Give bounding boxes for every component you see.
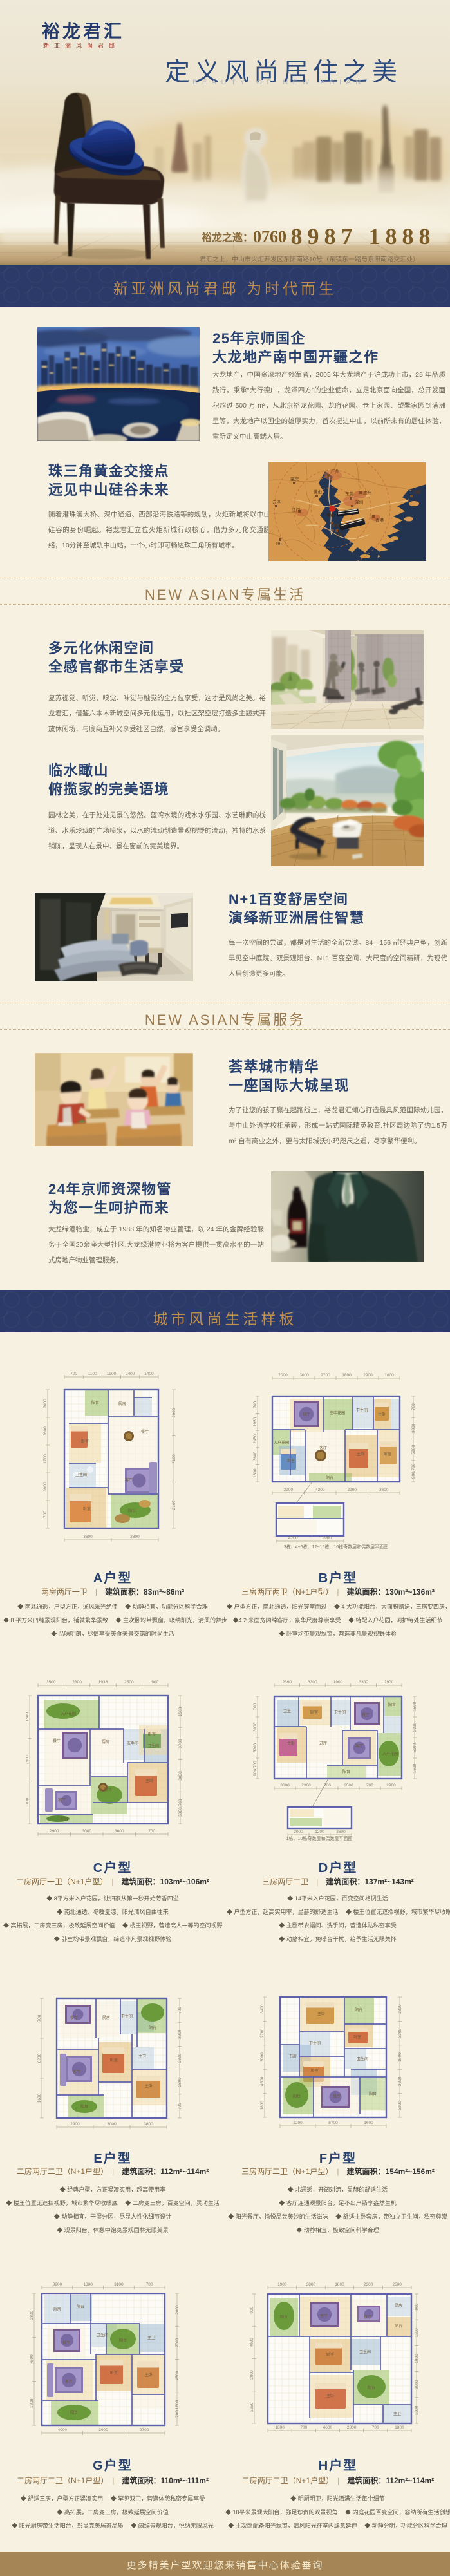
svg-text:1800: 1800 xyxy=(395,2425,404,2430)
svg-text:1500: 1500 xyxy=(413,1701,417,1711)
svg-text:2300: 2300 xyxy=(364,2282,373,2287)
svg-text:客厅: 客厅 xyxy=(73,2069,80,2074)
svg-text:1800: 1800 xyxy=(260,2101,265,2110)
svg-text:卫生间: 卫生间 xyxy=(309,2041,321,2046)
svg-text:4000: 4000 xyxy=(58,2428,68,2432)
svg-text:700: 700 xyxy=(146,2282,153,2287)
svg-text:卧室: 卧室 xyxy=(148,1732,156,1737)
svg-text:客厅: 客厅 xyxy=(319,1445,327,1450)
svg-text:2200: 2200 xyxy=(413,1722,417,1732)
svg-text:1700: 1700 xyxy=(26,1797,30,1807)
svg-text:3650: 3650 xyxy=(250,2402,254,2412)
svg-text:厨房: 厨房 xyxy=(102,1739,109,1745)
svg-text:2450: 2450 xyxy=(253,1434,258,1444)
svg-text:2900: 2900 xyxy=(386,1783,396,1788)
svg-text:阳江: 阳江 xyxy=(276,540,285,546)
svg-text:卫生间: 卫生间 xyxy=(147,1743,159,1748)
svg-text:主卧: 主卧 xyxy=(145,1778,153,1783)
svg-text:餐厅: 餐厅 xyxy=(364,2315,371,2320)
svg-text:香港: 香港 xyxy=(375,517,384,523)
svg-text:餐厅: 餐厅 xyxy=(333,2094,341,2099)
svg-text:900: 900 xyxy=(151,1680,158,1685)
svg-text:卧室: 卧室 xyxy=(326,2352,334,2357)
svg-text:中山: 中山 xyxy=(326,512,335,518)
svg-text:东莞: 东莞 xyxy=(345,491,354,497)
svg-text:卧室: 卧室 xyxy=(110,2058,118,2063)
svg-text:1900: 1900 xyxy=(277,2282,287,2287)
svg-text:3000: 3000 xyxy=(294,1830,303,1834)
svg-text:卫生间: 卫生间 xyxy=(334,1710,346,1715)
svg-text:入户花园: 入户花园 xyxy=(274,1440,289,1445)
svg-text:2900: 2900 xyxy=(284,1488,294,1492)
svg-text:3830: 3830 xyxy=(178,1771,183,1781)
svg-text:2800: 2800 xyxy=(398,2004,402,2014)
svg-text:3600: 3600 xyxy=(379,1488,389,1492)
svg-text:2900: 2900 xyxy=(384,1680,394,1685)
svg-text:6200: 6200 xyxy=(37,2053,42,2063)
svg-text:餐厅: 餐厅 xyxy=(303,1412,310,1417)
svg-text:卧室: 卧室 xyxy=(287,1458,295,1463)
svg-text:1800: 1800 xyxy=(415,2354,419,2363)
svg-text:1800: 1800 xyxy=(83,2282,93,2287)
svg-text:700: 700 xyxy=(372,2425,379,2430)
svg-text:700: 700 xyxy=(70,1372,77,1376)
svg-text:卧室: 卧室 xyxy=(311,2068,319,2073)
svg-text:阳台: 阳台 xyxy=(149,2025,156,2031)
svg-text:书房: 书房 xyxy=(289,2054,297,2059)
svg-text:2700: 2700 xyxy=(260,2028,265,2038)
svg-text:2700: 2700 xyxy=(175,2338,180,2347)
svg-text:主卧: 主卧 xyxy=(317,2011,325,2016)
svg-text:1900: 1900 xyxy=(398,2052,402,2062)
svg-text:3200: 3200 xyxy=(398,2101,402,2110)
svg-text:阳台: 阳台 xyxy=(119,2338,127,2343)
svg-text:3600: 3600 xyxy=(280,1783,290,1788)
svg-text:3800: 3800 xyxy=(306,2282,316,2287)
svg-text:3000: 3000 xyxy=(411,1423,416,1433)
svg-text:云浮: 云浮 xyxy=(272,499,281,505)
svg-text:1900: 1900 xyxy=(178,1707,183,1716)
svg-text:3200: 3200 xyxy=(53,2282,62,2287)
svg-text:3000: 3000 xyxy=(253,1722,258,1732)
svg-text:客厅: 客厅 xyxy=(125,1477,133,1482)
svg-text:900: 900 xyxy=(250,2306,254,2313)
svg-text:1900: 1900 xyxy=(333,1680,343,1685)
svg-text:5200: 5200 xyxy=(253,1743,258,1752)
svg-text:700: 700 xyxy=(178,2103,182,2110)
svg-text:2900: 2900 xyxy=(50,1829,59,1833)
svg-text:3000: 3000 xyxy=(260,2052,265,2062)
svg-text:餐厅: 餐厅 xyxy=(362,1712,370,1718)
svg-text:900,700: 900,700 xyxy=(411,1463,416,1479)
svg-text:3900: 3900 xyxy=(43,1482,48,1492)
svg-text:2300: 2300 xyxy=(301,1783,311,1788)
svg-text:1630: 1630 xyxy=(37,2093,42,2103)
svg-text:厨房: 厨房 xyxy=(53,2307,61,2312)
svg-text:1600: 1600 xyxy=(253,1468,258,1478)
svg-text:主卧: 主卧 xyxy=(326,2393,334,2398)
svg-text:2800: 2800 xyxy=(30,2311,34,2320)
svg-text:过厅: 过厅 xyxy=(319,1741,327,1746)
svg-text:2300: 2300 xyxy=(72,1680,82,1685)
svg-text:3000: 3000 xyxy=(178,2029,182,2039)
svg-text:客厅: 客厅 xyxy=(355,1743,363,1748)
svg-text:卫生间: 卫生间 xyxy=(357,2056,368,2061)
svg-text:3000: 3000 xyxy=(107,2122,117,2126)
svg-text:1600: 1600 xyxy=(413,1763,417,1773)
svg-text:2100: 2100 xyxy=(172,1501,176,1510)
svg-text:主卫: 主卫 xyxy=(147,2335,155,2340)
svg-text:900: 900 xyxy=(415,2303,419,2310)
svg-text:5200: 5200 xyxy=(411,1445,416,1455)
svg-text:5200: 5200 xyxy=(413,1743,417,1752)
svg-text:入户花园: 入户花园 xyxy=(61,1711,76,1716)
svg-text:2800: 2800 xyxy=(347,2425,357,2430)
svg-text:佛山: 佛山 xyxy=(314,489,322,495)
svg-text:2700: 2700 xyxy=(321,1373,330,1378)
svg-text:阳台: 阳台 xyxy=(355,2007,362,2012)
svg-text:700: 700 xyxy=(178,2007,182,2014)
svg-text:2800: 2800 xyxy=(178,2078,182,2087)
svg-text:700: 700 xyxy=(253,1401,258,1408)
svg-text:3000: 3000 xyxy=(98,2428,108,2432)
svg-text:卫生间: 卫生间 xyxy=(75,1472,87,1477)
svg-text:2000: 2000 xyxy=(175,2305,180,2315)
svg-text:3500: 3500 xyxy=(344,1783,353,1788)
svg-text:700: 700 xyxy=(253,1703,258,1710)
svg-text:7100: 7100 xyxy=(172,1454,176,1464)
svg-text:主卫: 主卫 xyxy=(393,2411,401,2416)
svg-text:卫生间: 卫生间 xyxy=(97,2333,108,2338)
svg-text:1200: 1200 xyxy=(315,1830,324,1834)
svg-text:3300: 3300 xyxy=(308,1680,317,1685)
svg-text:空中花园: 空中花园 xyxy=(330,1410,345,1416)
svg-text:2600: 2600 xyxy=(43,1426,48,1436)
svg-text:卧室: 卧室 xyxy=(384,1452,391,1457)
svg-text:汕尾: 汕尾 xyxy=(413,489,422,495)
svg-text:厨房: 厨房 xyxy=(395,2303,402,2308)
svg-text:3600: 3600 xyxy=(336,1830,346,1834)
svg-text:阳台: 阳台 xyxy=(128,1508,136,1513)
svg-text:阳台: 阳台 xyxy=(70,2410,78,2415)
svg-text:餐厅: 餐厅 xyxy=(62,2340,70,2345)
svg-text:1800: 1800 xyxy=(30,2398,34,2408)
svg-text:客厅: 客厅 xyxy=(58,1797,66,1803)
svg-text:3000: 3000 xyxy=(299,1373,309,1378)
svg-text:1100: 1100 xyxy=(415,2328,419,2337)
svg-text:1950: 1950 xyxy=(253,1417,258,1426)
svg-text:2900: 2900 xyxy=(70,2122,80,2126)
svg-text:卧室: 卧室 xyxy=(110,2370,118,2375)
svg-text:7500: 7500 xyxy=(26,1755,30,1765)
svg-text:2400: 2400 xyxy=(126,1372,135,1376)
svg-text:4200: 4200 xyxy=(315,1488,325,1492)
svg-text:900,700: 900,700 xyxy=(253,1761,258,1776)
svg-text:700: 700 xyxy=(300,2425,307,2430)
svg-text:深圳: 深圳 xyxy=(355,499,363,505)
svg-text:2000: 2000 xyxy=(172,1408,176,1417)
svg-text:2000: 2000 xyxy=(278,1373,288,1378)
svg-text:700: 700 xyxy=(324,1783,331,1788)
svg-text:住卧: 住卧 xyxy=(378,1412,386,1417)
svg-text:5000,700: 5000,700 xyxy=(178,1799,183,1816)
svg-text:卫生间: 卫生间 xyxy=(121,2014,133,2019)
svg-text:阳台: 阳台 xyxy=(342,1769,350,1774)
svg-text:1800: 1800 xyxy=(342,1373,352,1378)
svg-text:700: 700 xyxy=(148,1829,155,1833)
svg-text:客厅: 客厅 xyxy=(320,2313,328,2318)
svg-text:阳台: 阳台 xyxy=(280,2315,288,2320)
svg-text:阳台: 阳台 xyxy=(61,1817,68,1822)
svg-text:3500: 3500 xyxy=(46,1680,56,1685)
svg-text:1800: 1800 xyxy=(384,1373,394,1378)
svg-text:阳台: 阳台 xyxy=(388,1702,396,1707)
svg-text:澳门: 澳门 xyxy=(337,531,345,537)
svg-text:4600: 4600 xyxy=(323,2425,333,2430)
svg-text:主卧: 主卧 xyxy=(287,1741,295,1746)
svg-text:卫生: 卫生 xyxy=(283,1709,291,1714)
svg-text:1500: 1500 xyxy=(26,1712,30,1722)
svg-text:3600: 3600 xyxy=(115,1829,124,1833)
svg-text:3800: 3800 xyxy=(130,1535,140,1539)
svg-text:1100: 1100 xyxy=(88,1372,97,1376)
svg-text:8700: 8700 xyxy=(328,2121,338,2125)
svg-text:洗手间: 洗手间 xyxy=(127,1741,138,1746)
svg-text:2300: 2300 xyxy=(398,2076,402,2086)
svg-text:2300: 2300 xyxy=(178,2053,182,2063)
svg-text:珠海: 珠海 xyxy=(332,522,341,528)
svg-text:卫生间: 卫生间 xyxy=(359,2349,371,2354)
svg-text:4000: 4000 xyxy=(250,2338,254,2347)
svg-text:1800: 1800 xyxy=(335,2282,344,2287)
svg-text:1800: 1800 xyxy=(275,2425,285,2430)
svg-text:2500: 2500 xyxy=(124,1680,134,1685)
svg-text:2900: 2900 xyxy=(348,1488,357,1492)
svg-text:1000: 1000 xyxy=(415,2405,419,2415)
svg-text:3000: 3000 xyxy=(82,1829,92,1833)
svg-text:3600: 3600 xyxy=(144,2122,153,2126)
svg-text:主卫: 主卫 xyxy=(138,2054,146,2059)
svg-text:3600: 3600 xyxy=(253,1451,258,1461)
svg-text:3300: 3300 xyxy=(359,1680,368,1685)
svg-text:阳台: 阳台 xyxy=(80,2104,88,2109)
svg-text:卧室: 卧室 xyxy=(83,1506,91,1511)
svg-text:3400: 3400 xyxy=(260,2004,265,2014)
svg-text:1936: 1936 xyxy=(98,1680,108,1685)
svg-text:700: 700 xyxy=(43,1511,48,1518)
svg-text:江门: 江门 xyxy=(292,507,300,513)
svg-text:2900: 2900 xyxy=(323,1536,332,1540)
svg-text:阳台: 阳台 xyxy=(326,1475,333,1481)
svg-text:2300: 2300 xyxy=(283,1680,292,1685)
svg-text:1400: 1400 xyxy=(144,1372,154,1376)
svg-text:3600: 3600 xyxy=(83,1535,93,1539)
svg-text:700: 700 xyxy=(366,1783,373,1788)
svg-text:3栋、4~6栋、12~15栋、16栋奇数层和偶数层平面图: 3栋、4~6栋、12~15栋、16栋奇数层和偶数层平面图 xyxy=(284,1544,388,1549)
svg-text:餐厅: 餐厅 xyxy=(70,2015,78,2020)
svg-text:1600: 1600 xyxy=(364,2121,373,2125)
svg-text:阳台: 阳台 xyxy=(368,2385,375,2391)
svg-text:餐厅: 餐厅 xyxy=(141,1429,149,1434)
svg-text:阳台: 阳台 xyxy=(104,1787,112,1792)
svg-text:700: 700 xyxy=(411,1403,416,1410)
svg-text:卧室: 卧室 xyxy=(353,2034,361,2040)
svg-text:客厅: 客厅 xyxy=(65,2379,73,2384)
svg-text:主卧: 主卧 xyxy=(145,2083,153,2088)
svg-text:卧室: 卧室 xyxy=(81,1439,89,1444)
svg-text:2200: 2200 xyxy=(293,2121,303,2125)
svg-text:700: 700 xyxy=(37,2014,42,2022)
svg-text:2900: 2900 xyxy=(363,1373,373,1378)
svg-text:700,1800: 700,1800 xyxy=(175,2400,180,2417)
svg-text:3100: 3100 xyxy=(114,2282,124,2287)
svg-text:3000: 3000 xyxy=(415,2380,419,2389)
svg-text:阳台: 阳台 xyxy=(293,2094,301,2099)
svg-text:4200: 4200 xyxy=(288,1536,298,1540)
svg-text:4500: 4500 xyxy=(260,2076,265,2086)
svg-text:4500: 4500 xyxy=(175,2371,180,2381)
svg-text:广州: 广州 xyxy=(331,468,339,474)
svg-text:2700: 2700 xyxy=(140,2428,149,2432)
svg-text:惠州: 惠州 xyxy=(363,489,371,495)
svg-text:餐厅: 餐厅 xyxy=(53,1738,61,1743)
svg-text:3000: 3000 xyxy=(250,2370,254,2380)
svg-text:2500: 2500 xyxy=(392,2282,402,2287)
svg-text:1栋、10栋奇数层和偶数层平面图: 1栋、10栋奇数层和偶数层平面图 xyxy=(286,1835,353,1841)
svg-text:卫生间: 卫生间 xyxy=(356,1408,368,1413)
svg-text:1900: 1900 xyxy=(107,1372,117,1376)
svg-text:3700: 3700 xyxy=(178,1739,183,1748)
svg-text:入户花园: 入户花园 xyxy=(382,1751,398,1756)
svg-text:肇庆: 肇庆 xyxy=(290,476,299,482)
svg-text:7500: 7500 xyxy=(30,2354,34,2364)
svg-text:2000: 2000 xyxy=(43,1399,48,1408)
svg-text:1700: 1700 xyxy=(43,1454,48,1464)
svg-text:阳台: 阳台 xyxy=(91,1400,99,1405)
svg-text:主卧: 主卧 xyxy=(145,2372,153,2378)
svg-text:阳台: 阳台 xyxy=(77,2304,84,2309)
svg-text:厨房: 厨房 xyxy=(102,2015,110,2020)
svg-text:3200: 3200 xyxy=(398,2028,402,2038)
svg-text:厨房: 厨房 xyxy=(118,1401,126,1406)
svg-text:卧室: 卧室 xyxy=(310,1710,318,1715)
svg-text:阳台: 阳台 xyxy=(395,2324,402,2329)
svg-text:主卧: 主卧 xyxy=(357,1452,364,1457)
svg-text:阳台: 阳台 xyxy=(369,2091,377,2096)
